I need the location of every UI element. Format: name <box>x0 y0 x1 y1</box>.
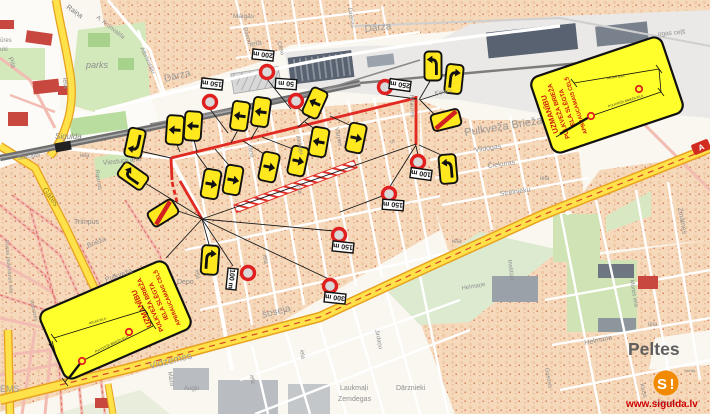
svg-text:iela: iela <box>540 176 550 182</box>
svg-text:iela: iela <box>80 153 90 159</box>
svg-text:Zemdegas: Zemdegas <box>338 396 372 403</box>
svg-text:www.sigulda.lv: www.sigulda.lv <box>625 399 698 410</box>
svg-text:iela: iela <box>648 322 658 328</box>
svg-text:Depo: Depo <box>177 279 194 286</box>
svg-text:Nītaures: Nītaures <box>408 95 415 118</box>
svg-text:Peltes: Peltes <box>628 339 680 359</box>
svg-text:ūres: ūres <box>0 38 12 44</box>
svg-text:iela: iela <box>452 239 462 245</box>
svg-text:Laukmaļi: Laukmaļi <box>340 385 368 392</box>
svg-text:iela: iela <box>61 78 69 90</box>
svg-text:Dārznieki: Dārznieki <box>396 385 426 392</box>
svg-text:Sigulda: Sigulda <box>55 132 82 141</box>
svg-text:150 m: 150 m <box>383 200 403 208</box>
svg-text:Maigas: Maigas <box>233 13 255 20</box>
svg-text:Vairāk: Vairāk <box>684 368 695 373</box>
svg-text:50 m: 50 m <box>278 79 294 87</box>
svg-text:S: S <box>657 376 667 393</box>
svg-text:Augļu: Augļu <box>184 386 199 392</box>
svg-text:EMS: EMS <box>0 384 20 394</box>
svg-text:!: ! <box>670 376 675 393</box>
svg-text:Trimpus: Trimpus <box>74 219 100 226</box>
svg-text:uki: uki <box>0 47 8 53</box>
svg-text:parks: parks <box>85 60 109 70</box>
